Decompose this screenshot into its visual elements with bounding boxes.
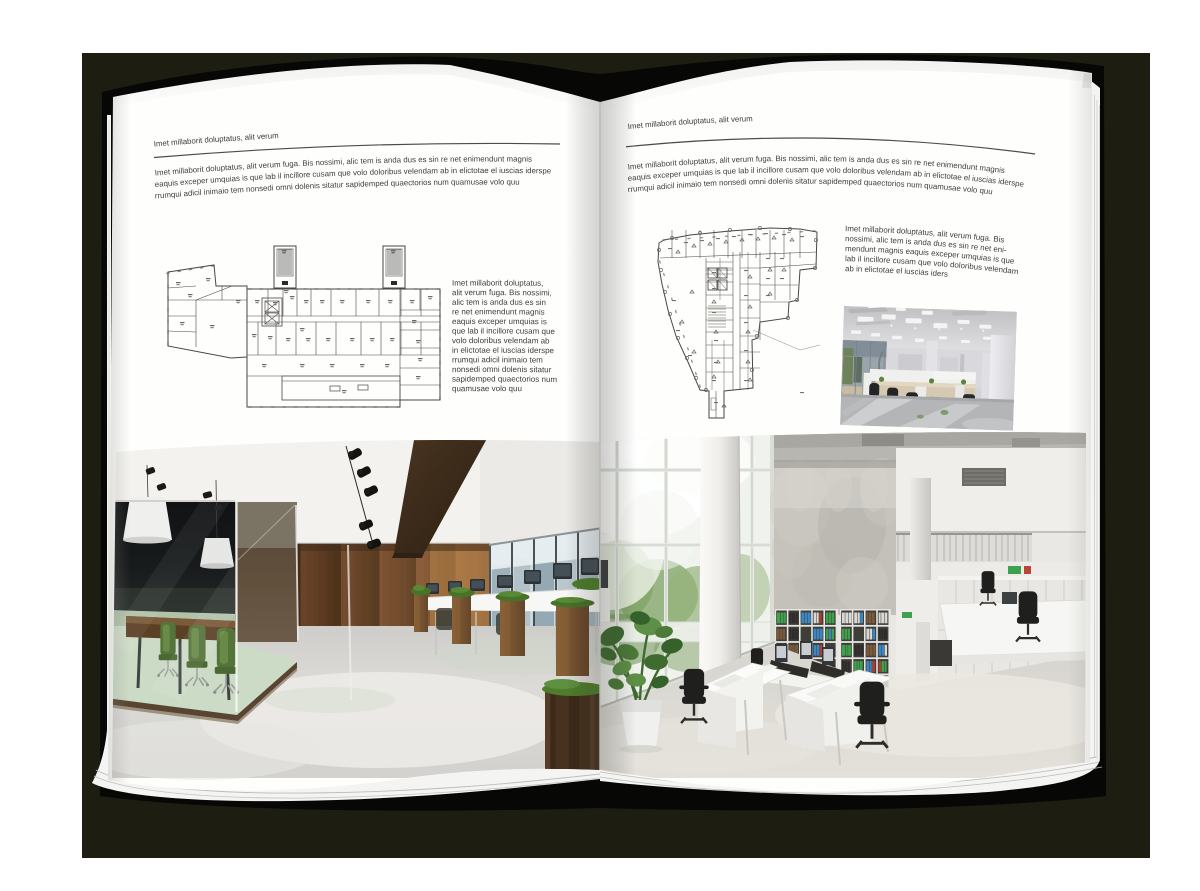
svg-text:nonsedi omni dolenis sitatur: nonsedi omni dolenis sitatur bbox=[452, 365, 552, 374]
svg-text:sapidemped quaectorios num: sapidemped quaectorios num bbox=[452, 374, 558, 384]
svg-text:alic tem is anda dus es sin: alic tem is anda dus es sin bbox=[452, 298, 546, 307]
svg-text:in elictotae el iuscias idersp: in elictotae el iuscias iderspe bbox=[452, 346, 555, 356]
svg-text:Imet millaborit doluptatus,: Imet millaborit doluptatus, bbox=[452, 278, 543, 287]
svg-text:alit verum fuga. Bis nossimi,: alit verum fuga. Bis nossimi, bbox=[452, 288, 552, 297]
svg-text:que lab il incillore cusam que: que lab il incillore cusam que bbox=[452, 326, 556, 336]
svg-text:rrumqui adicil inimaio tem: rrumqui adicil inimaio tem bbox=[452, 355, 543, 364]
svg-text:eaquis exceper umquias is: eaquis exceper umquias is bbox=[452, 317, 547, 326]
svg-text:volo doloribus velendam ab: volo doloribus velendam ab bbox=[452, 336, 550, 345]
svg-text:re net enimendunt magnis: re net enimendunt magnis bbox=[452, 307, 545, 316]
svg-text:quamusae volo quu: quamusae volo quu bbox=[452, 384, 522, 393]
